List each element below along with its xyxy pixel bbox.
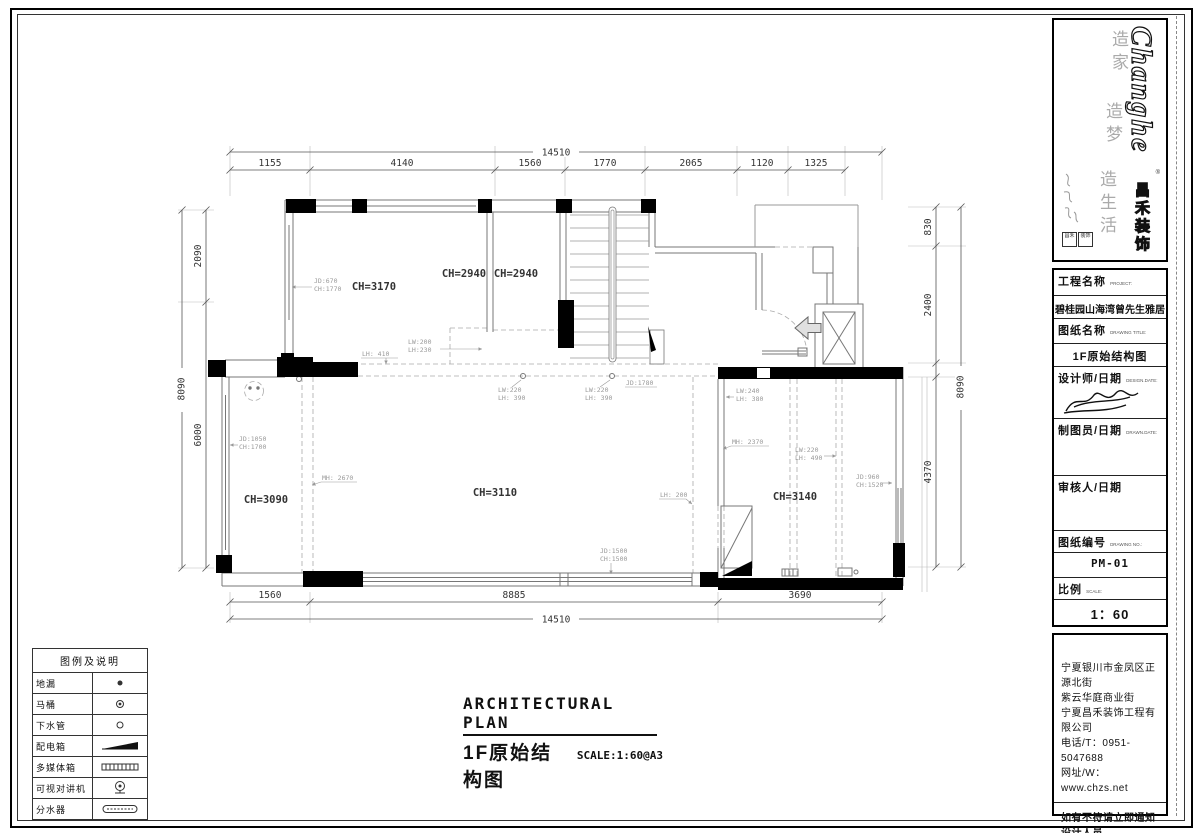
svg-text:4370: 4370 <box>923 460 934 483</box>
svg-text:LH: 390: LH: 390 <box>585 394 612 402</box>
dim-bottom-overall: 14510 <box>542 615 571 626</box>
svg-text:LH: 390: LH: 390 <box>498 394 525 402</box>
svg-text:2065: 2065 <box>680 158 703 169</box>
svg-text:LH:230: LH:230 <box>408 346 432 354</box>
legend-row-distribution-box: 配电箱 <box>33 736 147 757</box>
legend-row-water-manifold: 分水器 <box>33 799 147 819</box>
dim-top-overall: 14510 <box>542 148 571 159</box>
svg-text:LW:220: LW:220 <box>795 446 819 454</box>
note-1: 如有不符请立即通知设计人员 <box>1061 809 1159 833</box>
stair-handrail <box>609 207 616 362</box>
designer-signature <box>1054 385 1166 419</box>
plan-title-scale: SCALE:1:60@A3 <box>577 749 663 762</box>
field-project-value: 碧桂园山海湾曾先生雅居 <box>1054 296 1166 319</box>
svg-text:CH=3140: CH=3140 <box>773 491 817 503</box>
company-website: 网址/W：www.chzs.net <box>1061 766 1159 796</box>
svg-text:8885: 8885 <box>503 590 526 601</box>
svg-text:JD:1050: JD:1050 <box>239 435 266 443</box>
svg-text:LW:240: LW:240 <box>736 387 760 395</box>
plan-title: ARCHITECTURAL PLAN 1F原始结构图 SCALE:1:60@A3 <box>463 694 663 792</box>
svg-text:LH: 200: LH: 200 <box>660 491 687 499</box>
svg-text:1560: 1560 <box>259 590 282 601</box>
multimedia-box-icon <box>98 761 142 773</box>
svg-text:1155: 1155 <box>259 158 282 169</box>
walls <box>222 200 903 586</box>
legend-title: 图例及说明 <box>33 649 147 673</box>
legend-row-video-intercom: 可视对讲机 <box>33 778 147 799</box>
svg-text:1560: 1560 <box>519 158 542 169</box>
distribution-box-icon <box>98 740 142 752</box>
svg-text:CH:1500: CH:1500 <box>600 555 627 563</box>
legend-row-multimedia-box: 多媒体箱 <box>33 757 147 778</box>
drain-pipe-icon <box>100 719 140 731</box>
svg-text:JD:1780: JD:1780 <box>626 379 653 387</box>
brand-slogan-col2: 造梦 <box>1100 102 1125 166</box>
toilet-icon <box>100 698 140 710</box>
field-project-label: 工程名称 PROJECT: <box>1054 270 1166 296</box>
structural-walls <box>208 199 905 590</box>
svg-text:MH: 2670: MH: 2670 <box>322 474 353 482</box>
field-drafter-label: 制图员/日期 DRAWN.DATE: <box>1054 419 1166 437</box>
field-scale-value: 1：60 <box>1054 600 1166 629</box>
svg-text:1770: 1770 <box>594 158 617 169</box>
entry-arrow <box>795 317 821 339</box>
field-scale-label: 比例 SCALE: <box>1054 578 1166 600</box>
dimension-texts: 14510 1155 4140 1560 1770 2065 1120 1325… <box>176 146 967 626</box>
field-drawing-value: 1F原始结构图 <box>1054 344 1166 367</box>
field-no-value: PM-01 <box>1054 553 1166 578</box>
brand-slogan-col3: 造生活 <box>1094 170 1119 256</box>
plan-title-cn: 1F原始结构图 <box>463 738 569 792</box>
svg-text:LW:200: LW:200 <box>408 338 432 346</box>
dim-right-overall: 8090 <box>956 375 967 398</box>
floor-drain-icon <box>100 677 140 689</box>
field-drawing-label: 图纸名称 DRAWING TITLE: <box>1054 319 1166 344</box>
field-designer-label: 设计师/日期 DESIGN.DATE: <box>1054 367 1166 385</box>
calligraphy-mark <box>1060 170 1084 226</box>
brand-slogan-col1: 造家 <box>1106 30 1131 94</box>
svg-text:CH=3170: CH=3170 <box>352 281 396 293</box>
company-seal-2: 装饰 <box>1078 232 1093 247</box>
brand-logo-cn: 昌禾装饰 <box>1131 182 1152 258</box>
drain-pipe-symbol <box>297 377 302 382</box>
svg-text:LH: 410: LH: 410 <box>362 350 389 358</box>
company-seal-1: 昌禾 <box>1062 232 1077 247</box>
legend-row-toilet: 马桶 <box>33 694 147 715</box>
svg-text:JD:960: JD:960 <box>856 473 880 481</box>
svg-text:LH: 490: LH: 490 <box>795 454 822 462</box>
legend-table: 图例及说明 地漏 马桶 下水管 配电箱 多媒体箱 可视对讲机 分水器 <box>32 648 148 820</box>
svg-text:2090: 2090 <box>193 244 204 267</box>
svg-text:CH:1520: CH:1520 <box>856 481 883 489</box>
svg-text:CH:1700: CH:1700 <box>239 443 266 451</box>
svg-text:CH=3090: CH=3090 <box>244 494 288 506</box>
elevator-shaft <box>815 304 863 370</box>
svg-text:3690: 3690 <box>789 590 812 601</box>
plumbing-dashed-circle <box>245 382 264 401</box>
extension-lines <box>178 146 966 623</box>
brand-reg-mark: ® <box>1156 170 1160 176</box>
svg-text:CH=2940: CH=2940 <box>494 268 538 280</box>
titleblock-logo-box: Changhe ® 昌禾装饰 造家 造梦 造生活 昌禾 装饰 <box>1052 18 1168 262</box>
dimension-lines <box>179 149 965 623</box>
wall-opening <box>757 368 770 378</box>
svg-text:4140: 4140 <box>391 158 414 169</box>
titleblock-fields-box: 工程名称 PROJECT: 碧桂园山海湾曾先生雅居 图纸名称 DRAWING T… <box>1052 268 1168 627</box>
svg-text:CH=3110: CH=3110 <box>473 487 517 499</box>
svg-text:830: 830 <box>923 218 934 235</box>
titleblock-info-box: 宁夏银川市金凤区正源北街 紫云华庭商业街 宁夏昌禾装饰工程有限公司 电话/T：0… <box>1052 633 1168 816</box>
company-phone: 电话/T：0951-5047688 <box>1061 736 1159 766</box>
water-manifold-icon <box>98 803 142 815</box>
plan-title-en: ARCHITECTURAL PLAN <box>463 694 657 736</box>
legend-row-floor-drain: 地漏 <box>33 673 147 694</box>
svg-text:1325: 1325 <box>805 158 828 169</box>
svg-text:LW:220: LW:220 <box>585 386 609 394</box>
company-address-line2: 紫云华庭商业街 <box>1061 691 1159 706</box>
svg-text:CH:1770: CH:1770 <box>314 285 341 293</box>
svg-text:CH=2940: CH=2940 <box>442 268 486 280</box>
company-address-line1: 宁夏银川市金凤区正源北街 <box>1061 661 1159 691</box>
approver-empty <box>1054 494 1166 531</box>
dim-left-overall: 8090 <box>177 377 188 400</box>
field-no-label: 图纸编号 DRAWING NO.: <box>1054 531 1166 553</box>
drawing-sheet: 14510 1155 4140 1560 1770 2065 1120 1325… <box>0 0 1200 833</box>
legend-row-drain-pipe: 下水管 <box>33 715 147 736</box>
svg-text:JD:1500: JD:1500 <box>600 547 627 555</box>
svg-text:2400: 2400 <box>923 293 934 316</box>
svg-text:LH: 380: LH: 380 <box>736 395 763 403</box>
video-intercom-icon <box>100 780 140 796</box>
svg-text:LW:220: LW:220 <box>498 386 522 394</box>
drafter-empty <box>1054 437 1166 476</box>
room-height-labels: CH=3170 CH=2940 CH=2940 CH=3090 CH=3110 … <box>244 268 817 506</box>
field-approver-label: 审核人/日期 APPROVED.DATE: <box>1054 476 1166 494</box>
svg-text:1120: 1120 <box>751 158 774 169</box>
company-name: 宁夏昌禾装饰工程有限公司 <box>1061 706 1159 736</box>
svg-text:6000: 6000 <box>193 423 204 446</box>
svg-text:MH: 2370: MH: 2370 <box>732 438 763 446</box>
svg-text:JD:670: JD:670 <box>314 277 338 285</box>
